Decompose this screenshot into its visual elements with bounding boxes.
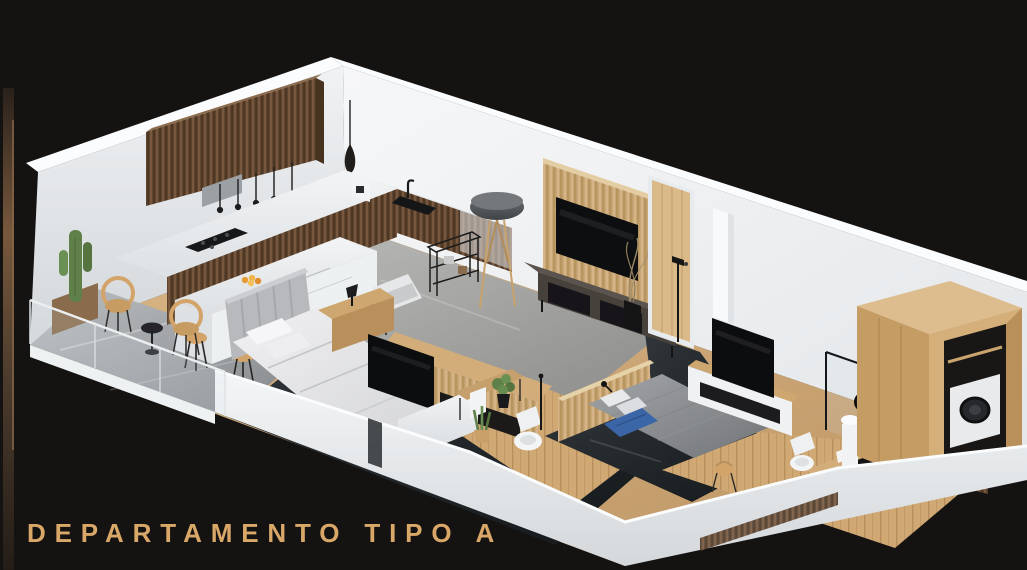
apartment-presentation: DEPARTAMENTO TIPO A — [0, 0, 1027, 570]
apartment-render — [0, 0, 1027, 570]
entry-door — [648, 175, 694, 349]
door-handle — [684, 262, 688, 266]
plan-title: DEPARTAMENTO TIPO A — [27, 518, 503, 549]
left-wood-strip-highlight — [12, 120, 14, 450]
wall-pilaster — [713, 208, 728, 322]
glass-insert — [368, 418, 382, 468]
